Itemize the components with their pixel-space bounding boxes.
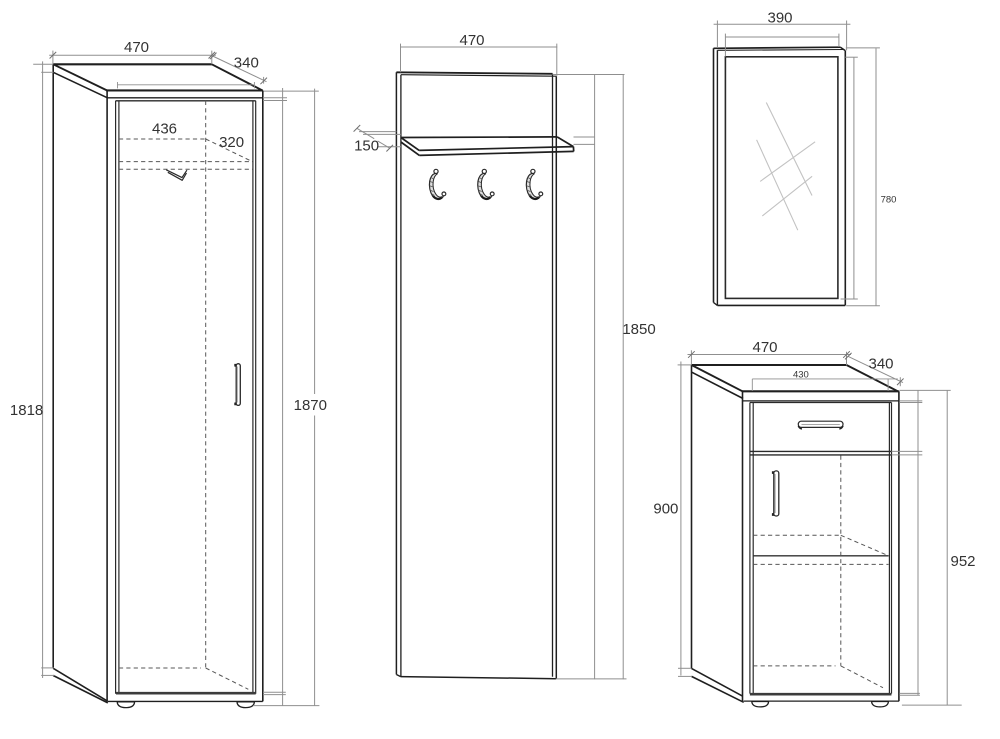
svg-text:436: 436 — [152, 121, 177, 138]
svg-text:470: 470 — [752, 339, 777, 356]
svg-text:952: 952 — [950, 553, 975, 570]
svg-text:150: 150 — [354, 138, 379, 155]
svg-text:1850: 1850 — [622, 321, 655, 338]
svg-text:780: 780 — [881, 195, 897, 206]
svg-text:470: 470 — [459, 32, 484, 49]
svg-text:430: 430 — [793, 370, 809, 381]
svg-text:340: 340 — [234, 55, 259, 72]
svg-text:900: 900 — [653, 501, 678, 518]
svg-text:320: 320 — [219, 134, 244, 151]
svg-text:390: 390 — [767, 10, 792, 27]
svg-text:340: 340 — [868, 355, 893, 372]
svg-text:1870: 1870 — [294, 397, 327, 414]
svg-text:470: 470 — [124, 39, 149, 56]
svg-text:1818: 1818 — [10, 402, 43, 419]
